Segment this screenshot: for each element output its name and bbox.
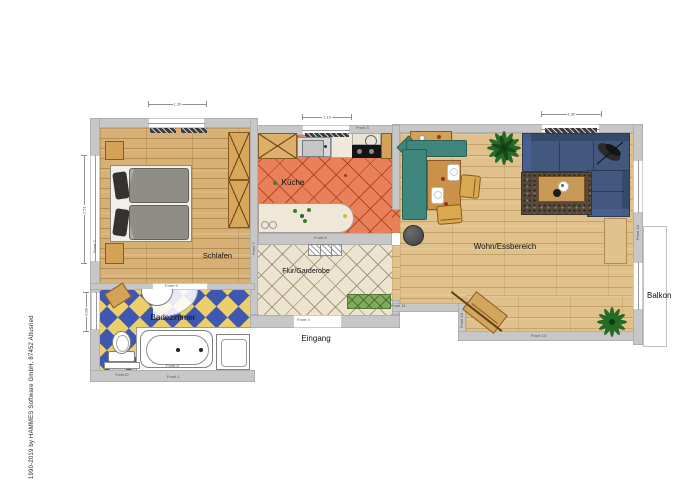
coffee-table — [538, 176, 585, 202]
bedroom-radiator-2 — [181, 128, 207, 133]
dimension-living-window: 1.90 — [541, 111, 602, 117]
floorplan-page: Balkon Schlafen Badezimmer Front 10 — [0, 0, 700, 500]
kitchen-cabinet-end — [381, 133, 392, 159]
counter-veggie-2 — [300, 214, 304, 218]
dimension-text: 1.90 — [567, 112, 577, 117]
plant-large — [484, 129, 524, 167]
room-label-kueche: Küche — [268, 178, 318, 187]
front-label: Front 8 — [166, 364, 179, 368]
bathtub-drain — [176, 348, 180, 352]
room-label-flur: Flur/Garderobe — [266, 268, 346, 275]
counter-lemon — [343, 214, 347, 218]
sofa-seam-3 — [590, 191, 624, 192]
toilet-bowl-inner — [116, 335, 129, 352]
kitchen-cabinet-x — [258, 133, 297, 159]
corner-bench-left — [402, 149, 427, 220]
front-label: Front 11 — [391, 304, 406, 308]
bed — [110, 165, 192, 242]
room-label-eingang: Eingang — [288, 334, 344, 343]
bathroom-window-left — [91, 292, 100, 330]
room-label-wohnen: Wohn/Essbereich — [450, 242, 560, 251]
plate-1-circle — [450, 168, 458, 176]
stove-area — [352, 133, 381, 145]
washing-machine — [216, 334, 250, 370]
copyright-text: 1990-2019 by HAMMES Software GmbH, 87452… — [29, 315, 35, 479]
dimension-bathroom-window-left: 0.88 — [83, 292, 89, 332]
dimension-text: 0.88 — [84, 307, 89, 317]
counter-veggie-3 — [307, 208, 311, 212]
dimension-text: 1.26 — [173, 102, 183, 107]
room-label-badezimmer: Badezimmer — [135, 313, 211, 322]
dimension-text: 2.51 — [82, 205, 87, 215]
sofa-right — [587, 170, 630, 217]
front-label: Front 1 — [167, 375, 180, 379]
toilet-bowl — [112, 331, 131, 354]
washing-machine-inner — [221, 339, 247, 367]
hall-passage-floor — [392, 245, 400, 302]
bedroom-radiator-1 — [150, 128, 176, 133]
table-decor-1 — [441, 177, 445, 181]
flower-center — [561, 184, 564, 187]
counter-bowl-2 — [269, 221, 277, 229]
front-label: Front 19 — [636, 225, 640, 240]
kitchen-faucet — [324, 145, 327, 148]
chair-back-line-1 — [473, 178, 476, 196]
front-label: Front 3 — [356, 126, 369, 130]
bedroom-dresser-top — [105, 141, 124, 160]
coat-closet-divider-1 — [320, 245, 321, 257]
sideboard-item-2 — [437, 135, 441, 139]
sofa-leaf-decor — [593, 138, 627, 168]
room-label-schlafen: Schlafen — [190, 251, 245, 260]
dimension-text: 1.13 — [322, 115, 332, 120]
front-label: Front 10 — [115, 373, 128, 377]
living-window-right — [633, 160, 643, 213]
bedroom-window-top — [148, 118, 205, 128]
front-10-box: Front 10 — [104, 362, 140, 369]
sofa-seam-1 — [559, 141, 560, 171]
wardrobe-panel-1 — [228, 132, 250, 180]
side-cabinet — [604, 218, 627, 264]
stove-burner-1 — [357, 149, 362, 154]
sofa-armrest-bottom — [588, 209, 629, 216]
dining-table — [427, 160, 461, 210]
front-label: Front 13 — [460, 313, 464, 328]
bed-pillow-1 — [112, 171, 130, 200]
dimension-bedroom-window-left: 2.51 — [81, 155, 87, 264]
wardrobe — [228, 132, 250, 228]
plate-2 — [431, 187, 444, 204]
dimension-kitchen-window: 1.13 — [302, 114, 352, 120]
bed-duvet-1 — [129, 168, 189, 203]
wall-kitchen-living-upper — [392, 125, 400, 210]
stove-burner-2 — [369, 149, 374, 154]
coat-closet-divider-2 — [331, 245, 332, 257]
bed-pillow-2 — [112, 208, 130, 237]
bathtub-faucet — [199, 348, 203, 352]
dining-chair-bottom — [436, 204, 463, 225]
dining-chair-right — [459, 174, 481, 199]
front-label: Front 9 — [165, 284, 178, 288]
bedroom-dresser-bottom — [105, 243, 124, 264]
kitchen-sink-basin — [302, 140, 324, 157]
plate-2-circle — [434, 191, 442, 199]
front-label: Front 2 — [93, 240, 97, 253]
balcony-door-right — [633, 262, 643, 310]
counter-bowl-1 — [261, 221, 269, 229]
coat-closet — [308, 244, 342, 256]
pouf — [403, 225, 424, 246]
front-label: Front 6 — [314, 236, 327, 240]
kitchen-upper-cabinet — [258, 133, 297, 159]
front-label: Front 14 — [531, 334, 546, 338]
room-label-balkon: Balkon — [647, 291, 671, 300]
plate-1 — [447, 164, 460, 181]
dimension-bedroom-window: 1.26 — [148, 101, 207, 107]
sofa-armrest-left — [523, 134, 531, 171]
kitchen-wall-strip — [305, 133, 349, 137]
kitchen-lower-counter — [258, 203, 354, 233]
stove — [352, 145, 381, 158]
door-mat — [347, 294, 391, 309]
bed-duvet-2 — [129, 205, 189, 240]
wardrobe-panel-2 — [228, 180, 250, 228]
front-label: Front 4 — [297, 318, 310, 322]
balcony-area — [643, 226, 667, 347]
dark-bowl — [553, 189, 561, 197]
counter-veggie-4 — [303, 219, 307, 223]
chair-back-line-2 — [440, 218, 460, 221]
kitchen-sink-unit — [297, 137, 331, 157]
kitchen-decor-dot — [344, 174, 347, 177]
front-label: Front 7 — [252, 242, 256, 255]
plant-small — [594, 305, 630, 339]
counter-veggie-1 — [293, 209, 297, 213]
